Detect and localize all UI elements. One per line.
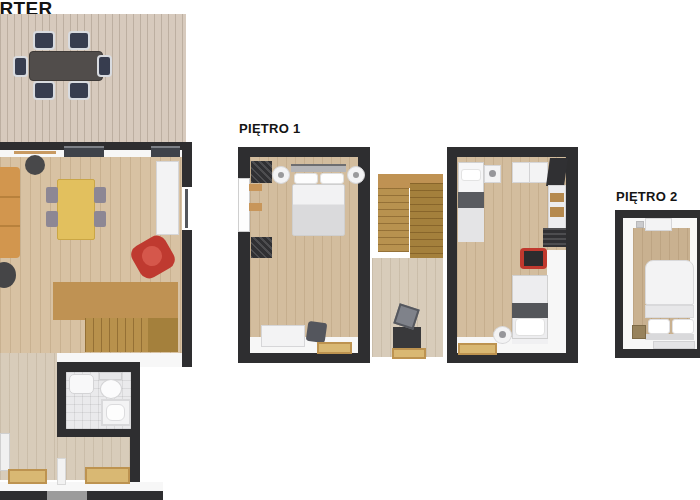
floorplan-canvas: PARTER PIĘTRO 1 [0,0,700,500]
chair [306,321,328,343]
dresser-dark [251,237,272,258]
desk-chair-seat [524,251,543,266]
wardrobe-dark [251,161,272,183]
outdoor-chair [68,81,90,100]
outdoor-chair [33,31,55,50]
dresser-white [645,218,672,231]
stairs-flight-left [378,188,409,252]
outdoor-chair [68,31,90,50]
wall-right [182,142,192,367]
pillow [461,169,481,181]
bed-headboard [291,164,346,172]
outdoor-chair [33,81,55,100]
stool [25,155,45,175]
wall-bottom [87,491,163,500]
wall-item [636,221,644,228]
bed-headboard [512,338,548,344]
window [185,189,188,228]
stairs [85,318,148,352]
dining-chair [46,187,58,203]
outdoor-chair [13,56,28,77]
bench-rug [653,341,695,349]
doormat [85,467,130,484]
stairs-flight-right [410,183,443,262]
bathtub-basin [106,404,125,421]
window-sill [249,203,262,211]
double-bed-duvet [645,260,694,305]
label-pietro2: PIĘTRO 2 [616,189,678,204]
stairs-landing [53,282,178,320]
doormat [392,348,426,359]
lamp-icon [278,172,284,178]
outdoor-chair [97,55,112,77]
sink [69,374,94,394]
desk [393,327,421,349]
bed-fold [645,305,694,318]
dining-chair [94,187,106,203]
window [151,146,180,157]
shelf-dark [543,228,566,247]
toilet [100,379,122,399]
label-pietro1: PIĘTRO 1 [239,121,301,136]
doormat [458,343,497,355]
stairs-upper [148,318,178,352]
doormat [317,342,352,354]
nightstand-brown [632,325,646,339]
bench [261,325,305,347]
bed-blanket-dark [512,303,548,318]
shelf-wood-bar [550,193,564,202]
dining-chair [46,211,58,227]
pillow [672,319,694,334]
entry-door [47,491,87,500]
bedroom2-floor-edge [547,250,566,337]
lamp-icon [353,172,359,178]
pillow [515,318,545,336]
partition-wall [57,458,66,485]
wardrobe-door-split [529,163,530,182]
window [64,146,104,157]
radiator [0,433,10,471]
wardrobe-white [512,162,548,183]
dining-chair [94,211,106,227]
double-bed-duvet [292,184,345,236]
sofa [0,167,20,258]
pillow [648,319,670,334]
bed-duvet [458,208,484,242]
bed-blanket-dark [458,192,484,208]
pillow [294,173,318,184]
window-sill [249,184,262,191]
doormat [8,469,47,484]
lamp-icon [489,170,496,177]
wall-bottom [0,491,47,500]
outdoor-dining-table [29,51,103,81]
pillow [320,173,344,184]
shelf-wood-bar [550,207,564,217]
lamp-icon [499,331,506,338]
terrace-door [14,151,56,154]
dining-table [57,179,95,240]
sideboard [156,161,179,235]
bed-headboard [645,334,694,340]
